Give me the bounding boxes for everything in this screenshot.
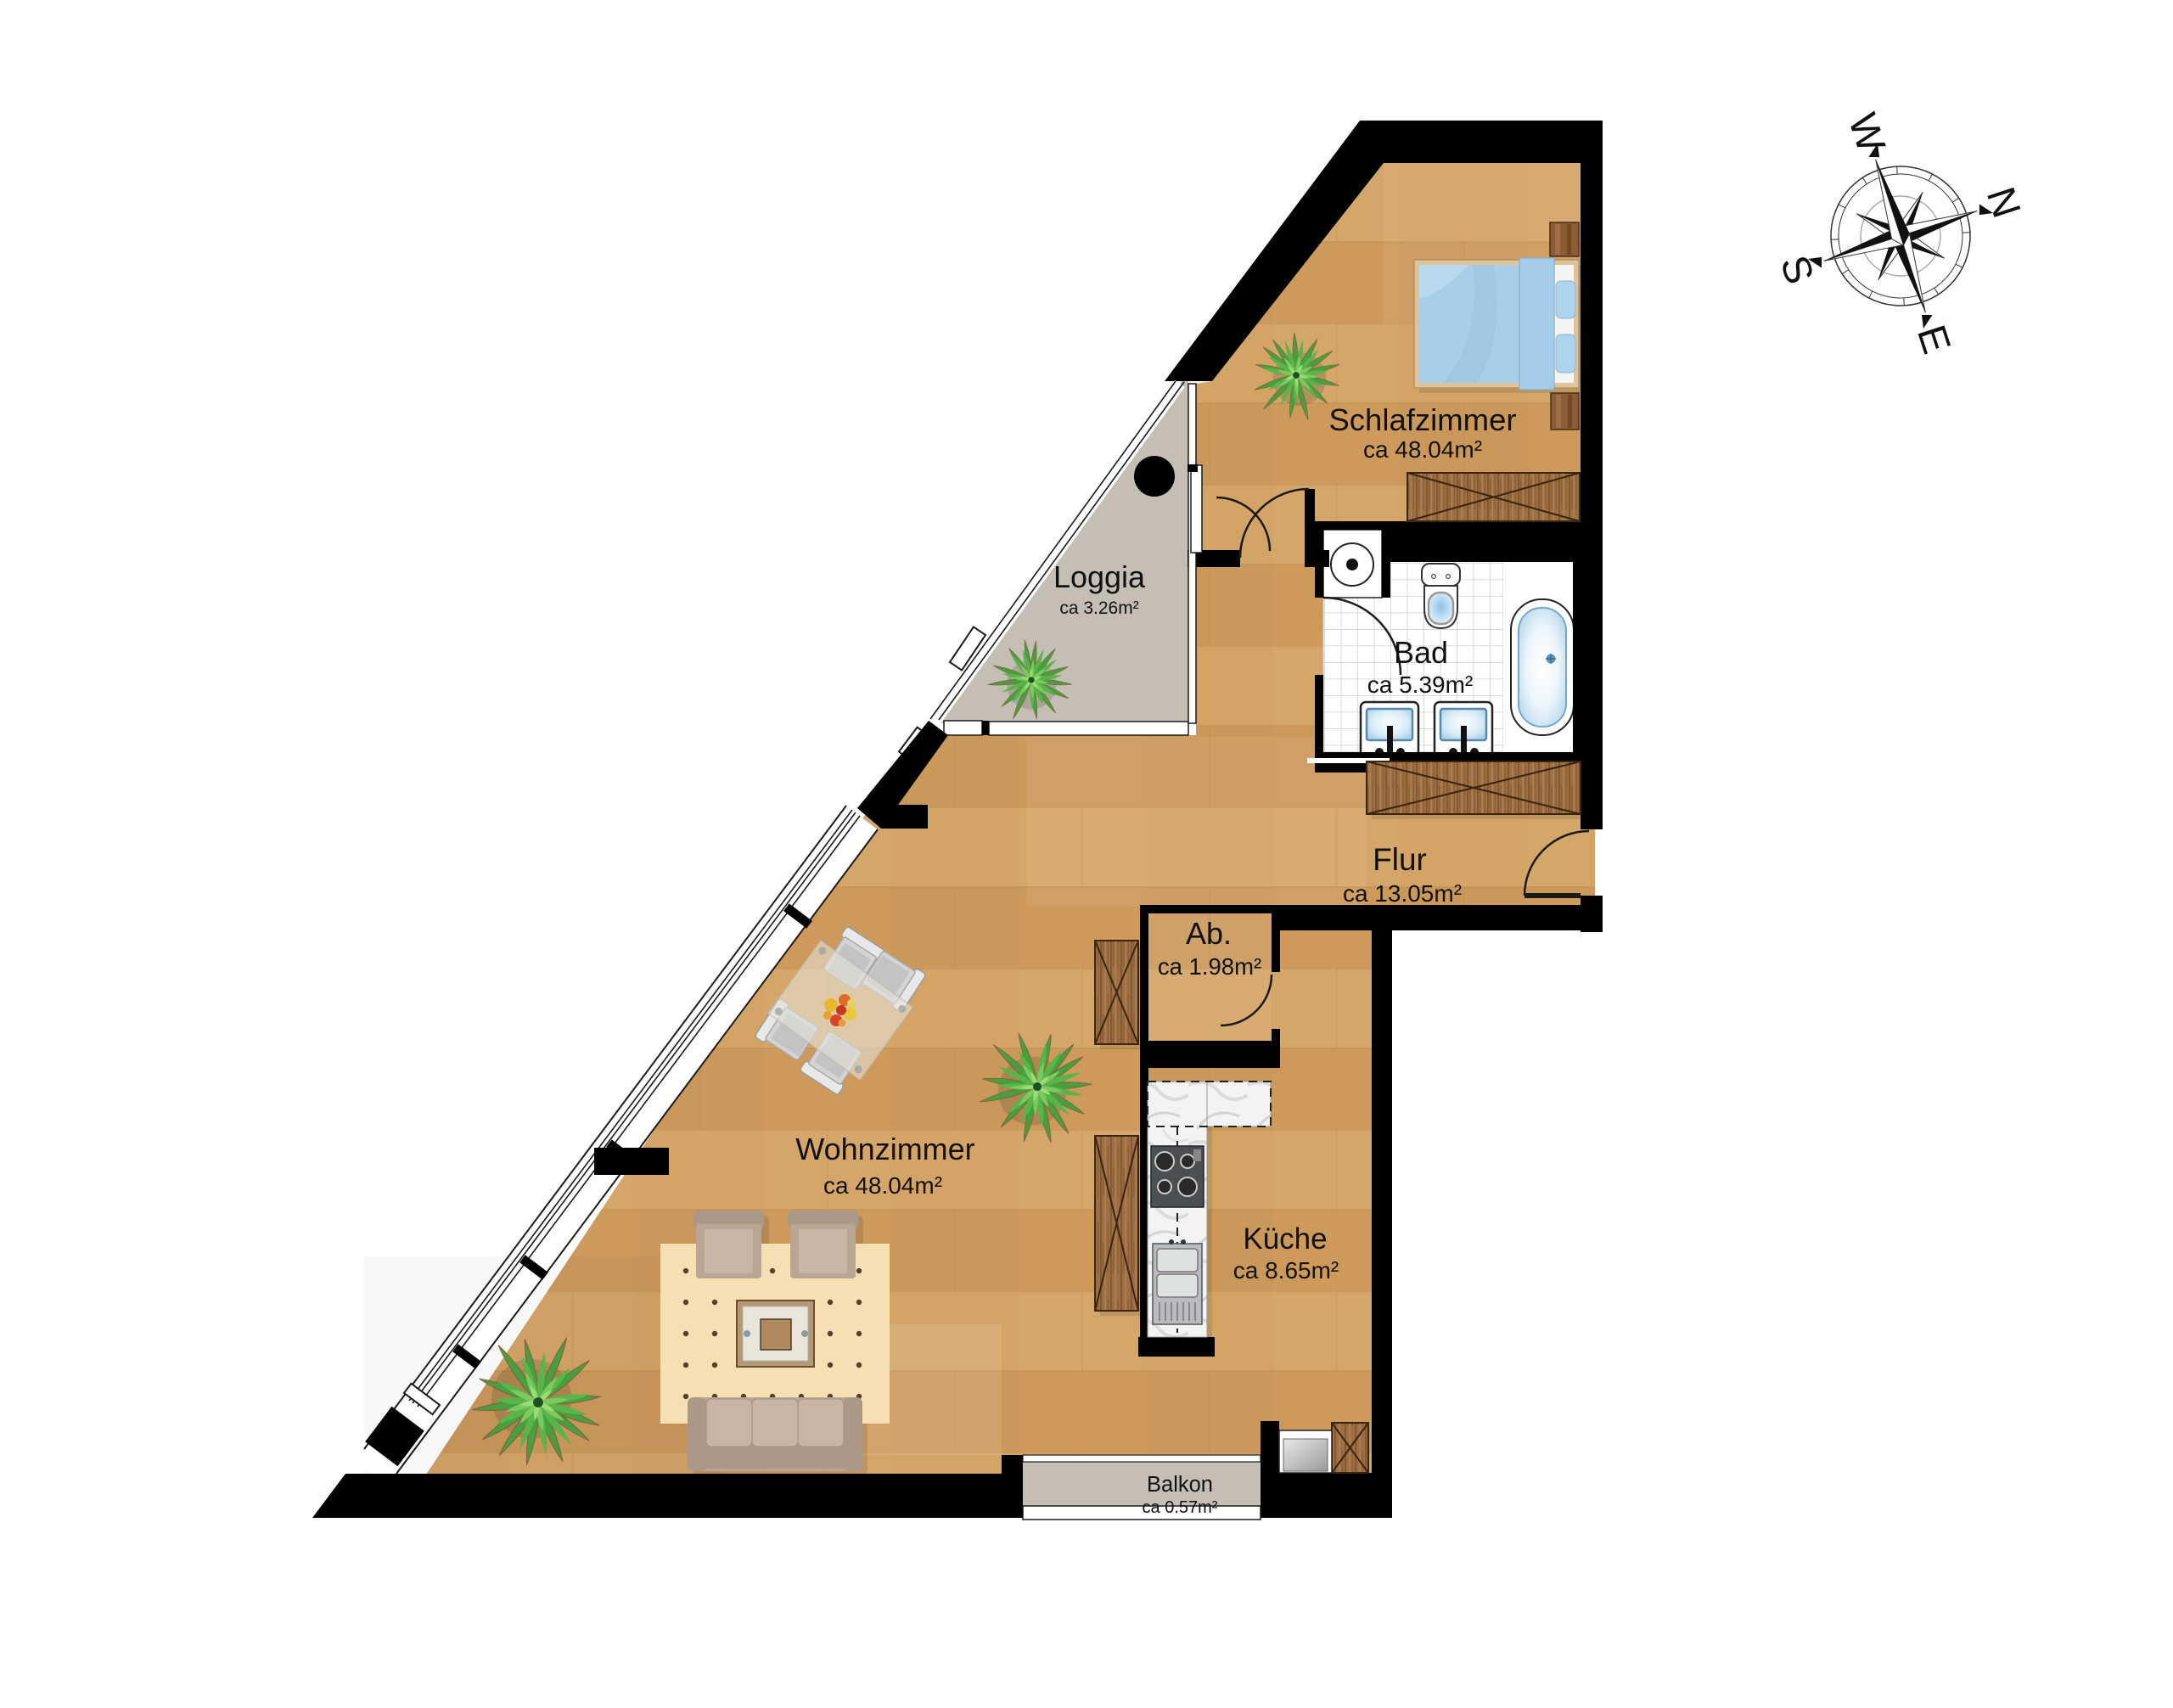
svg-text:Schlafzimmer: Schlafzimmer: [1328, 402, 1516, 437]
svg-text:ca 3.26m²: ca 3.26m²: [1059, 598, 1138, 618]
svg-text:ca 48.04m²: ca 48.04m²: [823, 1172, 942, 1199]
svg-text:ca 0.57m²: ca 0.57m²: [1143, 1498, 1218, 1517]
svg-text:Loggia: Loggia: [1053, 559, 1146, 594]
svg-text:ca 5.39m²: ca 5.39m²: [1367, 671, 1474, 698]
svg-text:ca 1.98m²: ca 1.98m²: [1158, 953, 1261, 980]
svg-text:Balkon: Balkon: [1147, 1473, 1213, 1497]
svg-text:Bad: Bad: [1394, 635, 1448, 670]
svg-text:ca 13.05m²: ca 13.05m²: [1343, 880, 1462, 907]
svg-text:Wohnzimmer: Wohnzimmer: [795, 1132, 974, 1166]
svg-text:ca 48.04m²: ca 48.04m²: [1363, 436, 1482, 463]
svg-text:Ab.: Ab.: [1186, 916, 1232, 951]
svg-text:ca 8.65m²: ca 8.65m²: [1233, 1257, 1339, 1284]
svg-text:Flur: Flur: [1373, 842, 1427, 877]
svg-text:Küche: Küche: [1243, 1222, 1327, 1256]
